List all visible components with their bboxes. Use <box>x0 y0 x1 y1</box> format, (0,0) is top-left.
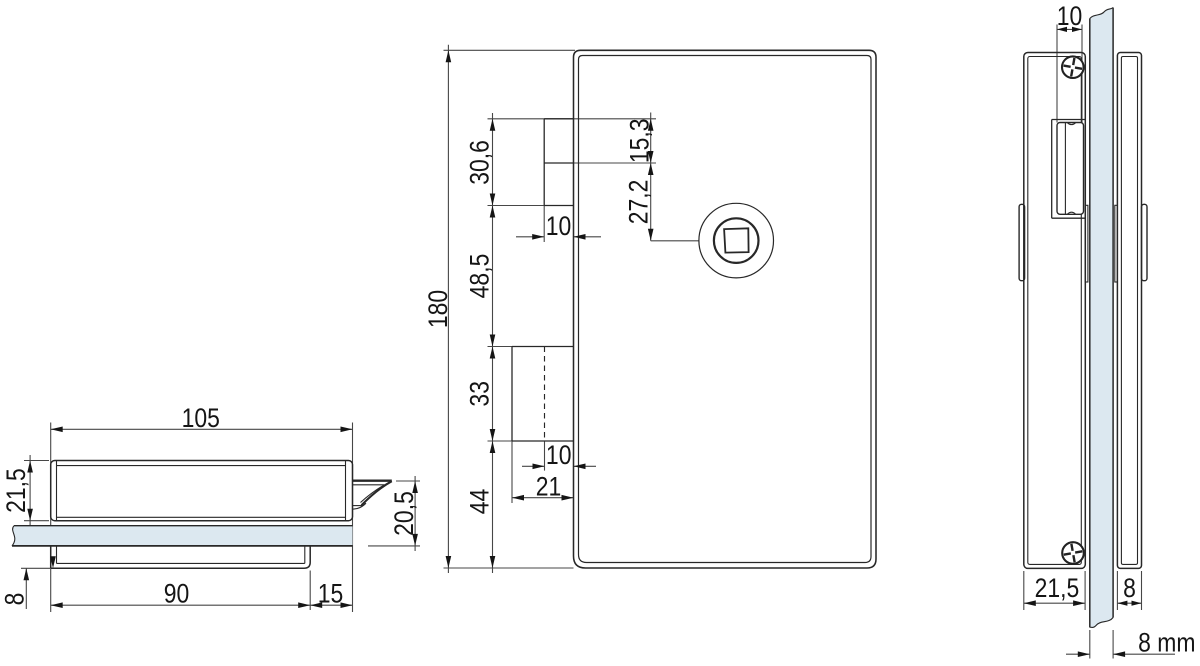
svg-text:90: 90 <box>164 579 190 609</box>
svg-text:105: 105 <box>182 403 220 433</box>
svg-text:27,2: 27,2 <box>624 180 654 225</box>
svg-text:44: 44 <box>465 489 495 515</box>
svg-text:8: 8 <box>1123 573 1136 603</box>
svg-text:21,5: 21,5 <box>1035 573 1080 603</box>
svg-text:15: 15 <box>318 579 344 609</box>
svg-text:20,5: 20,5 <box>389 491 419 536</box>
svg-text:30,6: 30,6 <box>465 140 495 185</box>
svg-text:180: 180 <box>423 290 453 328</box>
svg-text:8: 8 <box>0 593 30 606</box>
svg-text:8 mm: 8 mm <box>1138 628 1195 658</box>
svg-text:10: 10 <box>546 211 572 241</box>
svg-text:15,3: 15,3 <box>625 118 655 163</box>
svg-text:21,5: 21,5 <box>1 468 31 513</box>
svg-text:48,5: 48,5 <box>465 254 495 299</box>
svg-text:33: 33 <box>465 381 495 407</box>
svg-text:10: 10 <box>1057 1 1083 31</box>
svg-text:10: 10 <box>546 440 572 470</box>
svg-text:21: 21 <box>536 472 562 502</box>
